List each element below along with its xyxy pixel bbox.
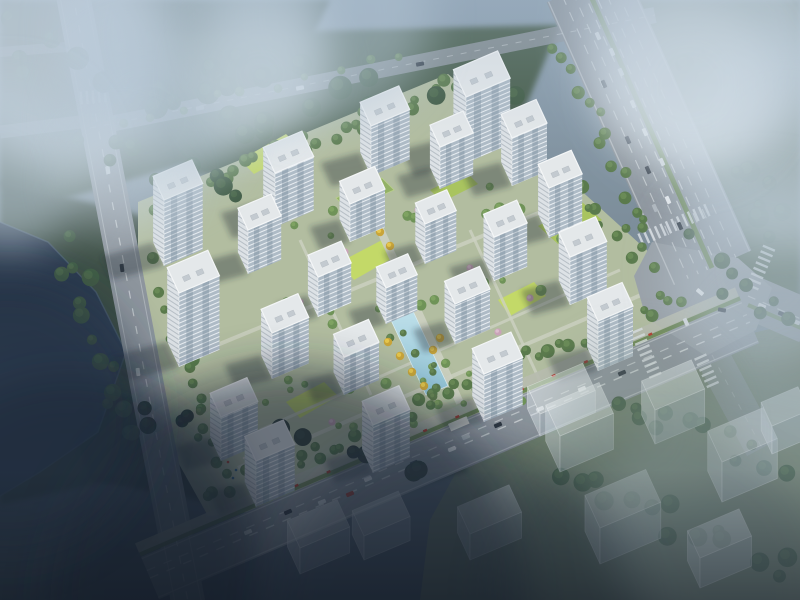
top-haze xyxy=(0,0,800,150)
bottom-vignette xyxy=(0,470,800,600)
aerial-rendering-residential-complex xyxy=(0,0,800,600)
scene-canvas xyxy=(0,0,800,600)
